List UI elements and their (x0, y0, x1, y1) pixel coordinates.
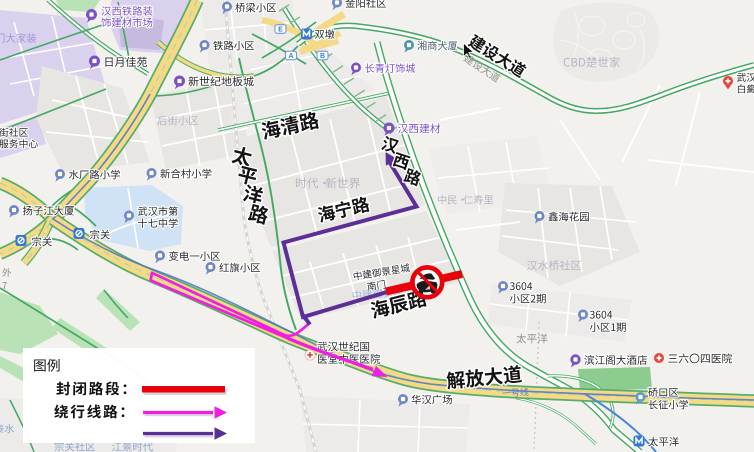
svg-text:B: B (320, 53, 325, 60)
svg-text:A: A (288, 53, 293, 60)
svg-text:E: E (278, 27, 283, 34)
